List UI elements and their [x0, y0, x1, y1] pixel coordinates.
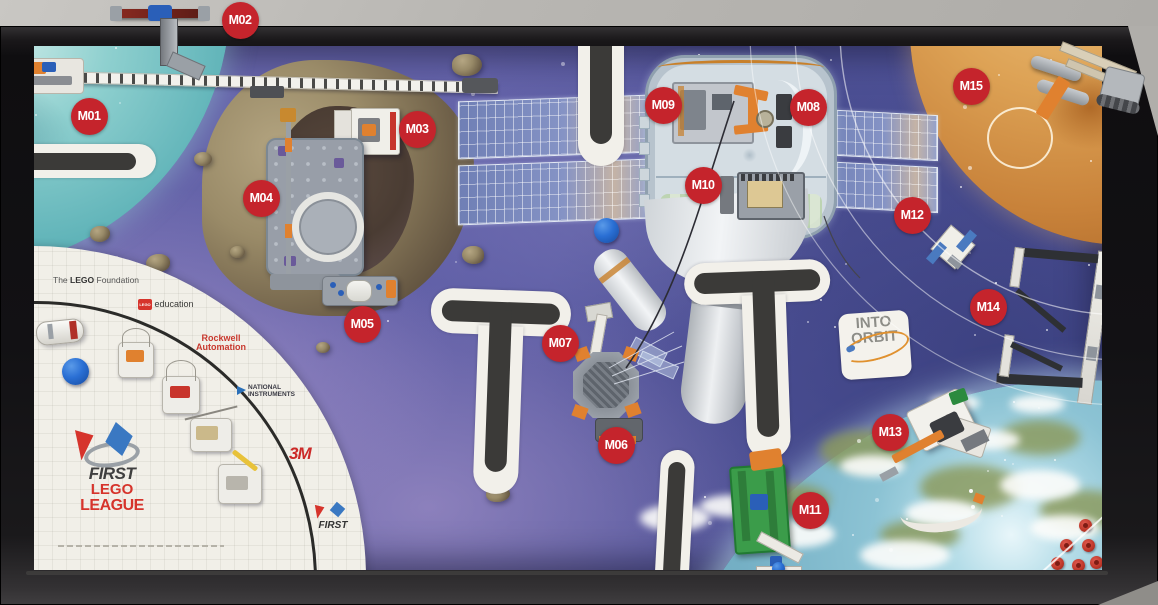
- into-orbit-logo: INTO ORBIT: [838, 310, 912, 381]
- star-field: [34, 46, 36, 48]
- fine-print-line: [58, 545, 224, 547]
- mission-marker-m03[interactable]: M03: [399, 111, 436, 148]
- small-asteroid: [462, 246, 484, 264]
- mission-marker-m01[interactable]: M01: [71, 98, 108, 135]
- mission-marker-label: M10: [692, 178, 715, 192]
- first-lego-league-logo: FIRST LEGO LEAGUE: [56, 426, 168, 514]
- path-t-right: [683, 258, 840, 467]
- blue-ball: [594, 218, 619, 243]
- mission-marker-label: M07: [549, 336, 572, 350]
- fll-into-orbit-table-photo: { "logo": { "into": "INTO", "orbit": "OR…: [0, 0, 1158, 605]
- mission-marker-label: M05: [351, 317, 374, 331]
- small-asteroid: [90, 226, 110, 242]
- path-t-left: [424, 288, 577, 505]
- small-asteroid: [194, 152, 212, 166]
- blue-ball: [772, 562, 785, 570]
- mission-marker-label: M02: [229, 13, 252, 27]
- mission-marker-m10[interactable]: M10: [685, 167, 722, 204]
- lego-foundation-logo: The LEGO Foundation: [53, 275, 139, 285]
- mission-marker-label: M06: [605, 438, 628, 452]
- mission-marker-m06[interactable]: M06: [598, 427, 635, 464]
- mission-marker-label: M09: [652, 98, 675, 112]
- mission-marker-label: M14: [977, 300, 1000, 314]
- ni-eagle-icon: [237, 386, 246, 395]
- 3m-logo: 3M: [289, 444, 311, 464]
- mission-marker-label: M01: [78, 109, 101, 123]
- mission-marker-label: M08: [797, 100, 820, 114]
- into-orbit-field-mat: The LEGO Foundation LEGO education Rockw…: [34, 46, 1102, 570]
- small-asteroid: [452, 54, 482, 76]
- earth-cloud: [860, 540, 950, 570]
- mission-marker-label: M13: [879, 425, 902, 439]
- mission-marker-label: M12: [901, 208, 924, 222]
- mission-marker-label: M04: [250, 191, 273, 205]
- lego-logo-box: LEGO: [138, 299, 152, 310]
- mission-marker-label: M15: [960, 79, 983, 93]
- mission-marker-m12[interactable]: M12: [894, 197, 931, 234]
- lego-education-logo: LEGO education: [138, 299, 194, 310]
- mission-marker-m02[interactable]: M02: [222, 2, 259, 39]
- mission-marker-m05[interactable]: M05: [344, 306, 381, 343]
- fll-logo-mark: [56, 426, 168, 466]
- rockwell-automation-logo: RockwellAutomation: [196, 334, 246, 352]
- mission-marker-m13[interactable]: M13: [872, 414, 909, 451]
- mission-marker-m15[interactable]: M15: [953, 68, 990, 105]
- mission-marker-label: M11: [799, 503, 821, 517]
- table-frame-lip: [26, 571, 1108, 575]
- mission-marker-m04[interactable]: M04: [243, 180, 280, 217]
- earth-cloud: [1000, 470, 1080, 500]
- mission-marker-m09[interactable]: M09: [645, 87, 682, 124]
- first-logo: FIRST: [300, 502, 366, 531]
- path-i-bottom: [655, 449, 698, 570]
- national-instruments-logo: NATIONALINSTRUMENTS: [248, 385, 295, 398]
- mission-marker-label: M03: [406, 122, 429, 136]
- small-asteroid: [230, 246, 245, 258]
- mission-marker-m07[interactable]: M07: [542, 325, 579, 362]
- mission-marker-m11[interactable]: M11: [792, 492, 829, 529]
- small-asteroid: [316, 342, 330, 353]
- blue-ball: [62, 358, 89, 385]
- mission-marker-m08[interactable]: M08: [790, 89, 827, 126]
- m14-model: [995, 239, 1102, 403]
- mission-marker-m14[interactable]: M14: [970, 289, 1007, 326]
